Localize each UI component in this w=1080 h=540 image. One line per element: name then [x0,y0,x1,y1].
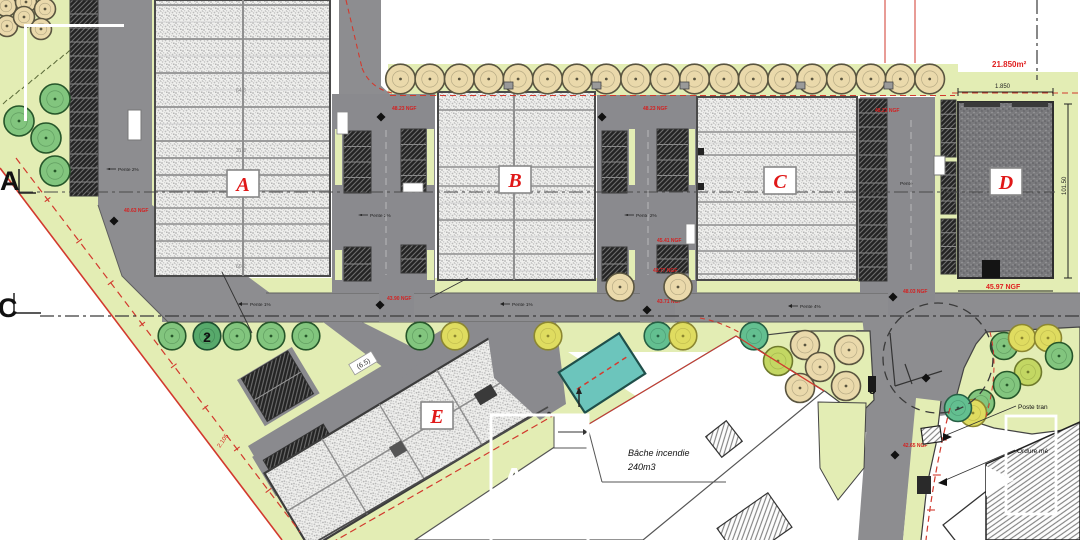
svg-text:101.50: 101.50 [1062,176,1068,195]
svg-text:31.8: 31.8 [236,148,246,154]
svg-text:40.63 NGF: 40.63 NGF [124,208,148,214]
svg-text:Pente 4%: Pente 4% [800,304,822,310]
svg-text:Pente 2%: Pente 2% [370,213,392,219]
svg-text:45.97 NGF: 45.97 NGF [986,284,1021,291]
svg-text:Poste tran: Poste tran [1018,404,1048,411]
svg-text:D: D [998,172,1013,194]
svg-text:43.90 NGF: 43.90 NGF [387,296,411,302]
svg-text:A: A [234,174,249,196]
svg-text:A: A [0,166,20,196]
svg-text:A: A [503,461,525,496]
svg-text:1.850: 1.850 [995,84,1011,90]
svg-text:60.2: 60.2 [236,264,246,270]
svg-text:240m3: 240m3 [627,462,656,472]
svg-text:Pente 2%: Pente 2% [118,167,140,173]
svg-text:Ordure mé: Ordure mé [1017,448,1048,455]
svg-text:48.23 NGF: 48.23 NGF [392,106,416,112]
svg-text:64.8: 64.8 [236,88,246,94]
svg-text:48.03 NGF: 48.03 NGF [903,289,927,295]
svg-text:Pente 1%: Pente 1% [512,302,534,308]
svg-text:C: C [0,293,18,323]
svg-text:C: C [773,171,787,193]
svg-text:E: E [429,406,443,428]
svg-text:2: 2 [203,329,211,345]
svg-text:B: B [507,170,521,192]
svg-text:Bâche incendie: Bâche incendie [628,448,690,458]
svg-text:48.23 NGF: 48.23 NGF [875,108,899,114]
svg-text:21.850m²: 21.850m² [992,60,1027,69]
svg-text:Pente 2%: Pente 2% [636,213,658,219]
svg-text:45.41 NGF: 45.41 NGF [657,238,681,244]
svg-text:Pente 1%: Pente 1% [250,302,272,308]
svg-text:48.23 NGF: 48.23 NGF [643,106,667,112]
